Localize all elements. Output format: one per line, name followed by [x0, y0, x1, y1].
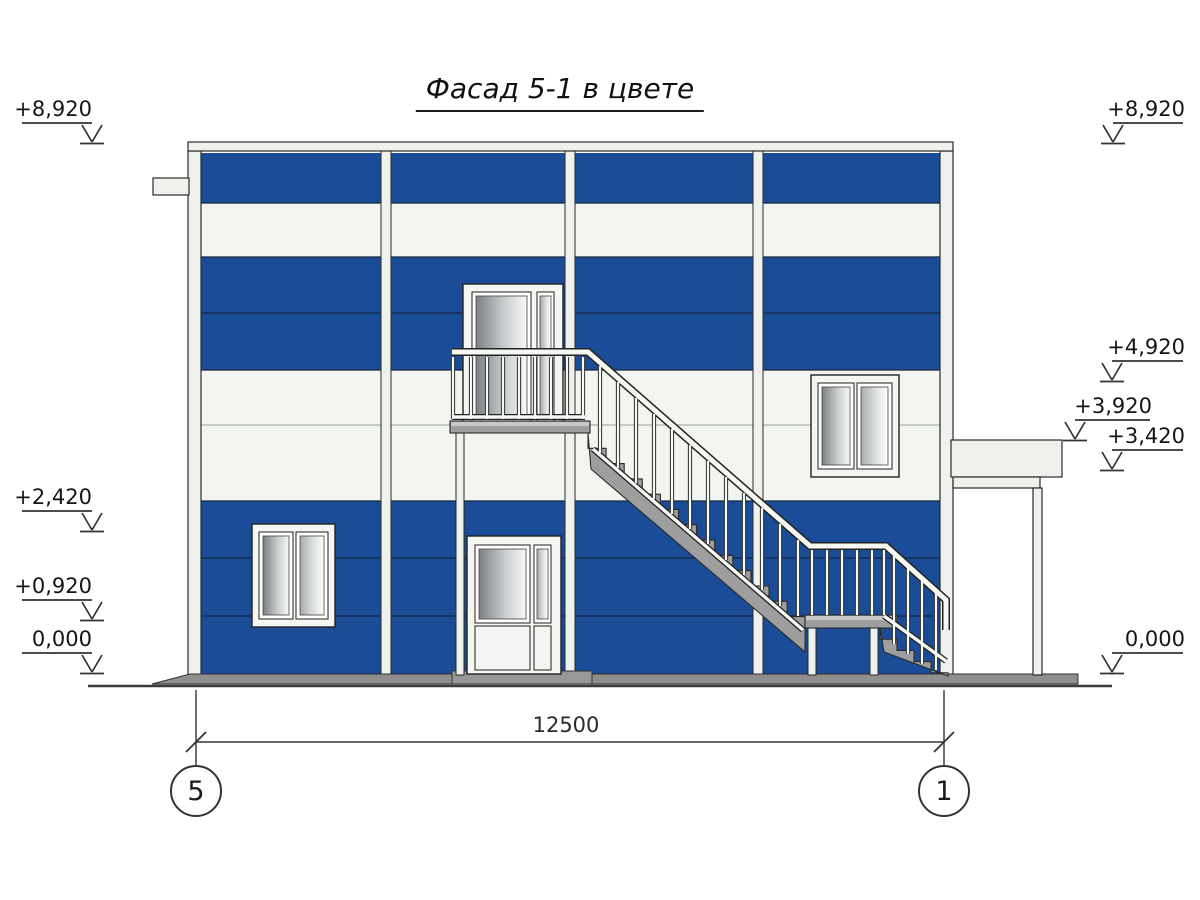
elevation-label-right-3920: +3,920 [1074, 394, 1152, 418]
axis-bubble-1: 1 [918, 765, 970, 817]
balcony-door [463, 284, 563, 431]
scupper [153, 178, 189, 195]
canopy-fascia [953, 477, 1040, 488]
elevation-label-left-2420: +2,420 [14, 485, 92, 509]
facade-graphics [0, 0, 1200, 900]
axis-bubble-5: 5 [170, 765, 222, 817]
left-pilaster [188, 151, 201, 678]
elevation-label-right-3420: +3,420 [1107, 424, 1185, 448]
canopy [951, 440, 1062, 675]
axis-label-5: 5 [187, 776, 204, 807]
ground [152, 674, 1078, 684]
axis-label-1: 1 [935, 776, 952, 807]
drawing-title: Фасад 5-1 в цвете [416, 72, 704, 112]
window-upper-right [811, 375, 899, 477]
dimension-value: 12500 [533, 713, 600, 737]
facade-drawing: Фасад 5-1 в цвете +8,920 +2,420 +0,920 0… [0, 0, 1200, 900]
elevation-label-right-0000: 0,000 [1125, 627, 1185, 651]
elevation-label-left-8920: +8,920 [14, 97, 92, 121]
canopy-slab [951, 440, 1062, 477]
window-lower-left [252, 524, 335, 627]
elevation-label-left-0920: +0,920 [14, 574, 92, 598]
canopy-post [1033, 488, 1042, 675]
parapet-cap [188, 142, 953, 151]
elevation-label-left-0000: 0,000 [32, 627, 92, 651]
elevation-label-right-8920: +8,920 [1107, 97, 1185, 121]
elevation-label-right-4920: +4,920 [1107, 335, 1185, 359]
entrance-door [467, 536, 561, 674]
